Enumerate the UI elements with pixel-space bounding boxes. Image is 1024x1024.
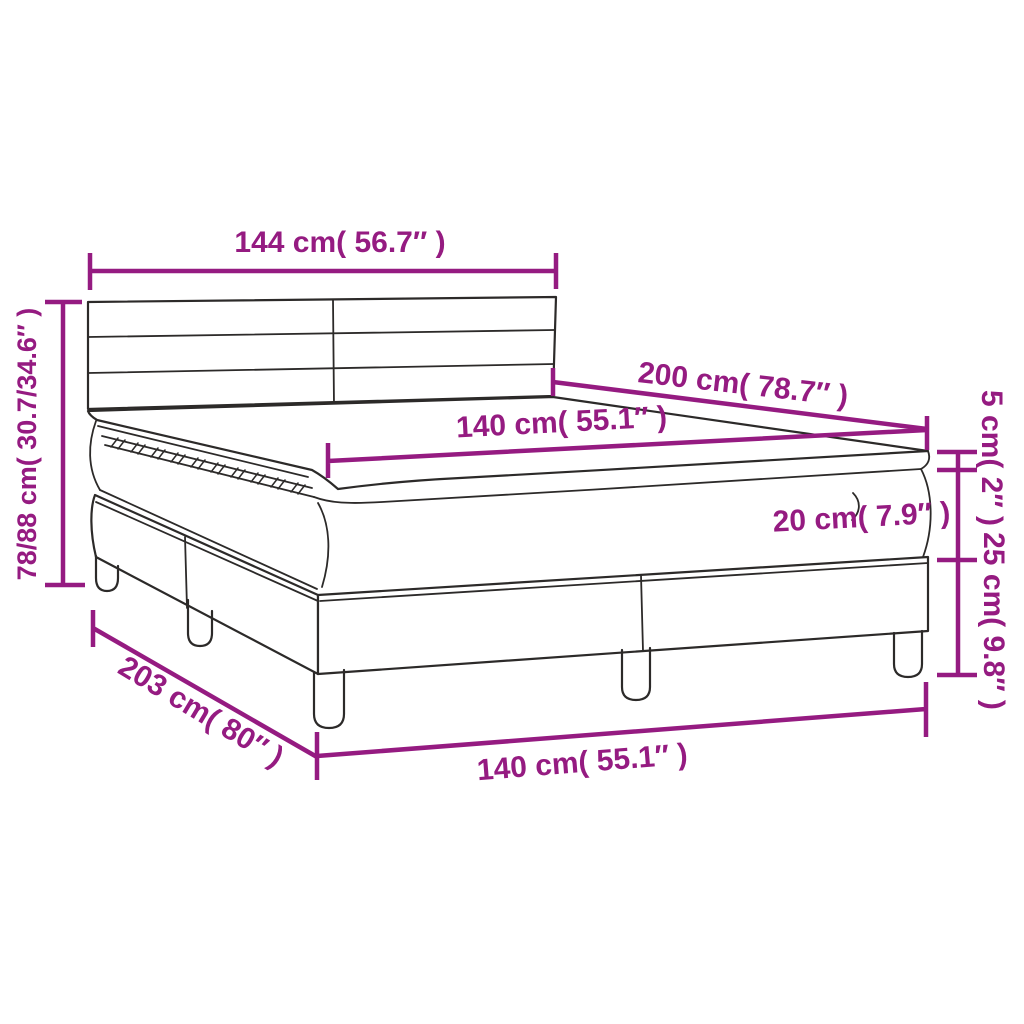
dim-layer-stack: 5 cm( 2″ ) 25 cm( 9.8″ ) (937, 390, 1010, 710)
dim-total-height: 78/88 cm( 30.7/34.6″ ) (12, 302, 85, 585)
dim-mattress-height-label: 20 cm( 7.9″ ) (772, 496, 951, 538)
product-dimension-diagram: 144 cm( 56.7″ ) 78/88 cm( 30.7/34.6″ ) 2… (0, 0, 1024, 1024)
topper-right-corner-cap (921, 451, 929, 469)
headboard-center-divider (333, 300, 334, 406)
dim-width-bottom-label: 140 cm( 55.1″ ) (476, 738, 689, 787)
headboard-panel (88, 297, 556, 409)
dim-base-height-label: 25 cm( 9.8″ ) (977, 532, 1010, 710)
dim-headboard-width: 144 cm( 56.7″ ) (90, 226, 556, 290)
bed-leg-3 (314, 670, 344, 728)
dim-headboard-width-label: 144 cm( 56.7″ ) (234, 226, 445, 259)
dim-mattress-height: 20 cm( 7.9″ ) (772, 496, 951, 538)
mattress-left-rounded-edge (90, 421, 100, 490)
dim-base-length-label: 203 cm( 80″ ) (113, 650, 290, 774)
dim-topper-height-label: 5 cm( 2″ ) (975, 390, 1008, 526)
dim-total-height-label: 78/88 cm( 30.7/34.6″ ) (12, 308, 42, 581)
dim-layer-stack-line (937, 452, 977, 675)
bed-leg-5 (894, 631, 922, 677)
diagram-svg: 144 cm( 56.7″ ) 78/88 cm( 30.7/34.6″ ) 2… (0, 0, 1024, 1024)
dim-total-height-line (45, 302, 85, 585)
mattress-front-corner-curve (318, 503, 328, 587)
bed-leg-4 (622, 648, 650, 700)
dim-width-bottom: 140 cm( 55.1″ ) (317, 682, 926, 787)
